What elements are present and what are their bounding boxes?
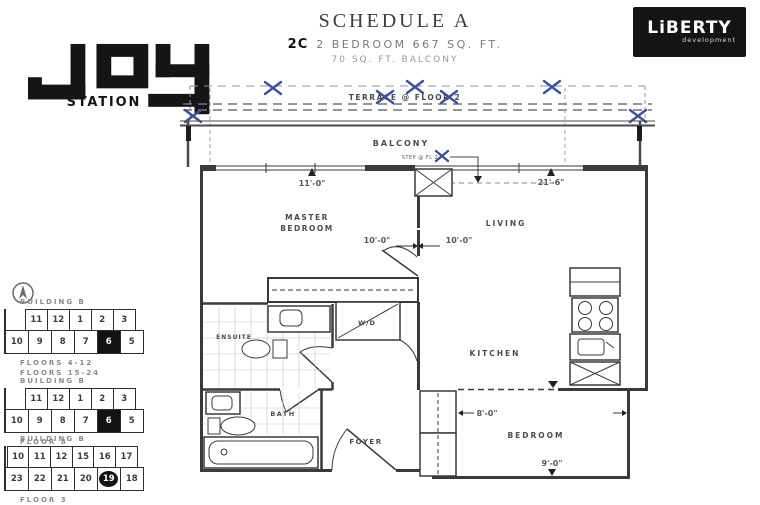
bath-label: BATH: [270, 410, 295, 418]
living-depth-dim: 10'-0": [446, 236, 473, 245]
keyplan-floor-labels: FLOOR 3: [20, 495, 146, 505]
balcony-label: BALCONY: [373, 139, 430, 148]
keyplan-unit-19: 19: [97, 467, 122, 492]
living-width-dim: 21'-6": [538, 178, 565, 187]
keyplan-floor-label: FLOORS 4-12: [20, 358, 146, 368]
bedroom-depth-dim: 8'-0": [476, 409, 497, 418]
kitchen-appliances: [570, 268, 620, 385]
keyplan-unit-12: 12: [47, 388, 71, 410]
keyplan-unit-7: 7: [74, 330, 99, 355]
keyplan-unit-12: 12: [47, 309, 71, 331]
keyplan-unit-11: 11: [25, 309, 49, 331]
bedroom-width-dim: 9'-0": [541, 459, 562, 468]
keyplan-unit-5: 5: [120, 330, 145, 355]
keyplan-grid: 11121231098765: [4, 309, 146, 354]
master-width-dim: 11'-0": [299, 179, 326, 188]
laundry-label: W/D: [358, 319, 376, 327]
living-label: LIVING: [486, 219, 527, 228]
master-depth-dim: 10'-0": [364, 236, 391, 245]
keyplan-unit-12: 12: [50, 446, 73, 468]
keyplan-floor-3: BUILDING B 101112151617232221201918 FLOO…: [4, 435, 146, 505]
keyplan-unit-17: 17: [115, 446, 138, 468]
keyplan-unit-10: 10: [5, 409, 30, 434]
bath-fixtures: [203, 392, 320, 468]
foyer-label: FOYER: [349, 438, 382, 446]
keyplan-unit-2: 2: [91, 388, 115, 410]
keyplan-unit-18: 18: [120, 467, 145, 492]
keyplan-unit-20: 20: [74, 467, 99, 492]
keyplan-building-label: BUILDING B: [20, 435, 146, 443]
keyplan-grid: 101112151617232221201918: [4, 446, 146, 491]
keyplan-unit-6: 6: [97, 330, 122, 355]
keyplan-unit-3: 3: [113, 309, 137, 331]
bedroom-label: BEDROOM: [507, 431, 564, 440]
keyplan-building-label: BUILDING B: [20, 298, 146, 306]
step-label: STEP @ FL 2: [402, 155, 439, 161]
keyplan-unit-2: 2: [91, 309, 115, 331]
keyplan-unit-9: 9: [28, 330, 53, 355]
master-bedroom-label-line1: MASTER: [285, 213, 329, 222]
kitchen-label: KITCHEN: [470, 349, 521, 358]
master-bedroom-label-line2: BEDROOM: [280, 224, 334, 233]
keyplan-unit-11: 11: [25, 388, 49, 410]
keyplan-unit-6: 6: [97, 409, 122, 434]
keyplan-unit-10: 10: [5, 330, 30, 355]
keyplan-unit-8: 8: [51, 409, 76, 434]
keyplan-unit-8: 8: [51, 330, 76, 355]
ensuite-label: ENSUITE: [216, 334, 252, 341]
keyplan-unit-7: 7: [74, 409, 99, 434]
keyplan-floor-labels: FLOORS 4-12FLOORS 15-24: [20, 358, 146, 378]
keyplan-floor-label: FLOOR 3: [20, 495, 146, 505]
keyplan-unit-22: 22: [28, 467, 53, 492]
keyplan-floors-4-24: BUILDING B 11121231098765 FLOORS 4-12FLO…: [4, 298, 146, 378]
keyplan-building-label: BUILDING B: [20, 377, 146, 385]
keyplan-unit-16: 16: [93, 446, 116, 468]
floorplan-sheet: JOY STATION SCHEDULE A 2C2 BEDROOM 667 S…: [0, 0, 760, 505]
keyplan-unit-3: 3: [113, 388, 137, 410]
keyplan-unit-1: 1: [69, 388, 93, 410]
keyplan-unit-21: 21: [51, 467, 76, 492]
keyplan-unit-10: 10: [7, 446, 30, 468]
keyplan-unit-1: 1: [69, 309, 93, 331]
keyplan-unit-15: 15: [72, 446, 95, 468]
keyplan-unit-5: 5: [120, 409, 145, 434]
keyplan-grid: 11121231098765: [4, 388, 146, 433]
keyplan-unit-23: 23: [5, 467, 30, 492]
keyplan-unit-9: 9: [28, 409, 53, 434]
keyplan-unit-11: 11: [28, 446, 51, 468]
laundry-closet: [336, 302, 417, 361]
